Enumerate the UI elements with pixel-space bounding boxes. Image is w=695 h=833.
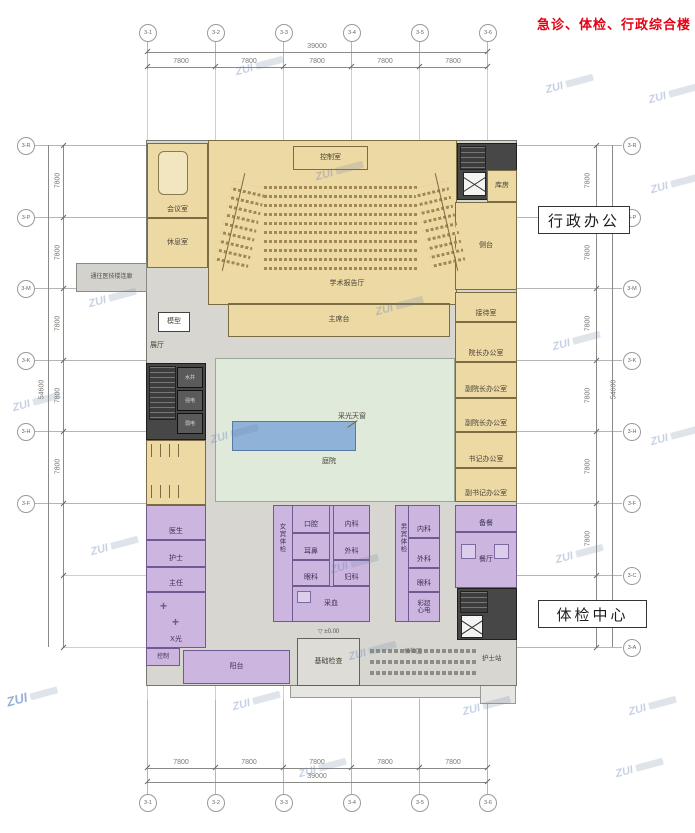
room-label: 彩超心电: [416, 600, 432, 615]
grid-bubble-left: 3-M: [17, 280, 35, 298]
room-label: 接待室: [476, 310, 497, 318]
grid-bubble-right: 3-M: [623, 280, 641, 298]
room-label: 控制: [157, 654, 169, 661]
room-label: 副书记办公室: [465, 490, 507, 498]
stair-left: [149, 366, 176, 420]
callout-admin-office: 行政办公: [538, 206, 630, 234]
grid-stem: [33, 145, 146, 146]
room-label: 院长办公室: [469, 350, 504, 358]
room-label: 休息室: [167, 239, 188, 247]
room-side-stage: 侧台: [455, 202, 517, 290]
room-storage: 库房: [487, 170, 517, 202]
dim-seg-bottom: 7800: [373, 759, 397, 766]
dim-line-total-bottom: [147, 782, 487, 783]
watermark: ZUI: [231, 689, 281, 713]
room-doctor: 医生: [146, 505, 206, 540]
dim-seg-left: 7800: [55, 455, 62, 479]
grid-stem: [33, 360, 146, 361]
exam-room-w2: 耳鼻: [292, 533, 330, 560]
room-label: 模型: [167, 318, 181, 326]
dining-table-icon: [461, 544, 476, 559]
dim-seg-top: 7800: [169, 58, 193, 65]
xray-equipment-icon: +: [160, 600, 167, 612]
room-label: 内科: [345, 521, 359, 529]
grid-bubble-right: 3-A: [623, 639, 641, 657]
grid-stem: [33, 431, 146, 432]
room-balcony: 阳台: [183, 650, 290, 684]
watermark: ZUI: [551, 329, 601, 353]
male-exam-hall-label: 男宾体检: [397, 523, 407, 579]
watermark: ZUI: [544, 72, 594, 96]
seat-rows-center: [262, 180, 418, 272]
grid-stem: [33, 503, 146, 504]
room-vice-secretary: 副书记办公室: [455, 468, 517, 502]
grid-stem: [283, 700, 284, 794]
room-label: 侧台: [479, 242, 493, 250]
grid-bubble-bottom: 3-1: [139, 794, 157, 812]
grid-stem: [517, 503, 622, 504]
room-label: 眼科: [304, 574, 318, 582]
grid-bubble-bottom: 3-5: [411, 794, 429, 812]
room-label: 护士: [169, 555, 183, 563]
room-label: 外科: [345, 548, 359, 556]
room-label: 基础检查: [315, 658, 343, 666]
room-label: 会议室: [167, 206, 188, 214]
room-director: 院长办公室: [455, 322, 517, 362]
stair-bottom-right: [460, 591, 488, 613]
grid-bubble-left: 3-K: [17, 352, 35, 370]
exam-room-e2: 外科: [408, 538, 440, 568]
shaft-strong-power: 强电: [177, 390, 203, 411]
room-label: 医生: [169, 528, 183, 536]
room-label: 库房: [495, 182, 509, 190]
grid-bubble-left: 3-H: [17, 423, 35, 441]
grid-bubble-bottom: 3-4: [343, 794, 361, 812]
grid-stem: [419, 700, 420, 794]
room-secretary: 书记办公室: [455, 432, 517, 468]
female-exam-hall-label: 女宾体检: [276, 523, 286, 579]
exam-room-w1: 口腔: [292, 505, 330, 533]
dim-seg-bottom: 7800: [169, 759, 193, 766]
grid-stem: [517, 288, 622, 289]
level-triangle-icon: ▽: [318, 629, 323, 635]
exhibition-label: 展厅: [150, 340, 164, 350]
room-label: 书记办公室: [469, 456, 504, 464]
toilets: [146, 440, 206, 505]
grid-stem: [33, 217, 146, 218]
callout-label: 行政办公: [548, 210, 620, 231]
room-dining: 餐厅: [455, 532, 517, 588]
exam-room-e1: 内科: [408, 505, 440, 538]
room-ultrasound-ecg: 彩超心电: [408, 592, 440, 622]
room-vice-director-1: 副院长办公室: [455, 362, 517, 398]
dim-seg-left: 7800: [55, 312, 62, 336]
dim-seg-right: 7800: [585, 169, 592, 193]
room-label: 主任: [169, 580, 183, 588]
room-label: 主席台: [329, 316, 350, 324]
grid-bubble-right: 3-F: [623, 495, 641, 513]
room-label: 控制室: [320, 154, 341, 162]
room-label: 备餐: [479, 520, 493, 528]
room-xray-control: 控制: [146, 648, 180, 666]
grid-bubble-bottom: 3-2: [207, 794, 225, 812]
grid-bubble-bottom: 3-3: [275, 794, 293, 812]
room-label: X光: [170, 636, 182, 644]
grid-bubble-right: 3-H: [623, 423, 641, 441]
watermark: ZUI: [627, 694, 677, 718]
watermark: ZUI: [649, 172, 695, 196]
room-stage: 主席台: [228, 303, 450, 337]
grid-bubble-right: 3-C: [623, 567, 641, 585]
stair-top-right: [460, 146, 486, 170]
dim-line-seg-top: [147, 67, 487, 68]
watermark: ZUI: [649, 424, 695, 448]
exam-room-e3: 眼科: [408, 568, 440, 592]
callout-exam-center: 体检中心: [538, 600, 647, 628]
grid-bubble-top: 3-2: [207, 24, 225, 42]
grid-bubble-top: 3-4: [343, 24, 361, 42]
shaft-weak-power: 弱电: [177, 413, 203, 434]
shaft-label: 弱电: [185, 420, 195, 427]
dim-seg-right: 7800: [585, 240, 592, 264]
waiting-area-label: 候检区: [404, 646, 422, 655]
room-label: 副院长办公室: [465, 420, 507, 428]
dim-total-right: 54600: [611, 373, 618, 407]
level-value: ±0.00: [324, 629, 339, 635]
room-reception: 接待室: [455, 292, 517, 322]
conference-table-icon: [158, 151, 188, 195]
grid-bubble-bottom: 3-6: [479, 794, 497, 812]
model-box: 模型: [158, 312, 190, 332]
room-label: 采血: [324, 600, 338, 608]
room-food-prep: 备餐: [455, 505, 517, 532]
grid-stem: [517, 145, 622, 146]
grid-stem: [351, 700, 352, 794]
grid-bubble-top: 3-6: [479, 24, 497, 42]
room-label: 副院长办公室: [465, 386, 507, 394]
shaft-label: 水井: [185, 374, 195, 381]
callout-label: 体检中心: [556, 604, 628, 625]
grid-bubble-top: 3-3: [275, 24, 293, 42]
room-vice-director-2: 副院长办公室: [455, 398, 517, 432]
watermark: ZUI: [11, 390, 61, 414]
dim-line-total-top: [147, 52, 487, 53]
watermark: ZUI: [647, 82, 695, 106]
dim-seg-right: 7800: [585, 383, 592, 407]
grid-bubble-left: 3-P: [17, 209, 35, 227]
elevator-bottom-right: [461, 615, 483, 638]
skylight-label: 采光天窗: [338, 411, 366, 421]
grid-stem: [517, 431, 622, 432]
shaft-water: 水井: [177, 367, 203, 388]
exam-room-w3: 眼科: [292, 560, 330, 586]
floor-plan: 3-13-23-33-43-53-63900078007800780078007…: [0, 0, 695, 833]
exam-room-w4: 内科: [333, 505, 370, 533]
grid-stem: [215, 700, 216, 794]
room-label: 妇科: [345, 574, 359, 582]
room-label: 阳台: [230, 663, 244, 671]
equipment-icon: [297, 591, 311, 603]
dim-line-seg-left: [63, 145, 64, 647]
level-mark: ▽ ±0.00: [318, 628, 339, 635]
dining-table-icon: [494, 544, 509, 559]
grid-stem: [517, 360, 622, 361]
watermark: ZUI: [89, 534, 139, 558]
grid-stem: [517, 647, 622, 648]
room-lounge: 休息室: [147, 218, 208, 268]
grid-bubble-top: 3-1: [139, 24, 157, 42]
room-label: 内科: [417, 526, 431, 534]
dim-seg-left: 7800: [55, 169, 62, 193]
grid-bubble-right: 3-K: [623, 352, 641, 370]
dim-seg-left: 7800: [55, 240, 62, 264]
shaft-label: 强电: [185, 397, 195, 404]
link-corridor-label: 通往医技楼连廊: [90, 274, 132, 281]
room-label: 外科: [417, 556, 431, 564]
room-nurse: 护士: [146, 540, 206, 567]
room-chief: 主任: [146, 567, 206, 592]
drawing-title: 急诊、体检、行政综合楼: [537, 14, 691, 33]
watermark: ZUI: [614, 756, 664, 780]
dim-seg-top: 7800: [441, 58, 465, 65]
dim-seg-bottom: 7800: [237, 759, 261, 766]
elevator-top-right: [463, 172, 486, 196]
dim-seg-top: 7800: [373, 58, 397, 65]
courtyard-label: 庭院: [322, 456, 336, 466]
dim-seg-bottom: 7800: [441, 759, 465, 766]
room-label: 耳鼻: [304, 548, 318, 556]
nurse-station-label: 护士站: [482, 652, 502, 662]
xray-equipment-icon: +: [172, 616, 179, 628]
room-label: 口腔: [304, 521, 318, 529]
dim-total-top: 39000: [302, 43, 332, 50]
grid-bubble-left: 3-F: [17, 495, 35, 513]
grid-bubble-left: 3-R: [17, 137, 35, 155]
link-corridor: 通往医技楼连廊: [76, 263, 147, 292]
auditorium-label: 学术报告厅: [302, 278, 392, 288]
room-label: 餐厅: [479, 556, 493, 564]
grid-bubble-top: 3-5: [411, 24, 429, 42]
grid-stem: [517, 575, 622, 576]
dim-seg-top: 7800: [305, 58, 329, 65]
grid-bubble-right: 3-R: [623, 137, 641, 155]
room-label: 眼科: [417, 580, 431, 588]
watermark: ZUI: [5, 682, 59, 710]
dim-seg-right: 7800: [585, 455, 592, 479]
